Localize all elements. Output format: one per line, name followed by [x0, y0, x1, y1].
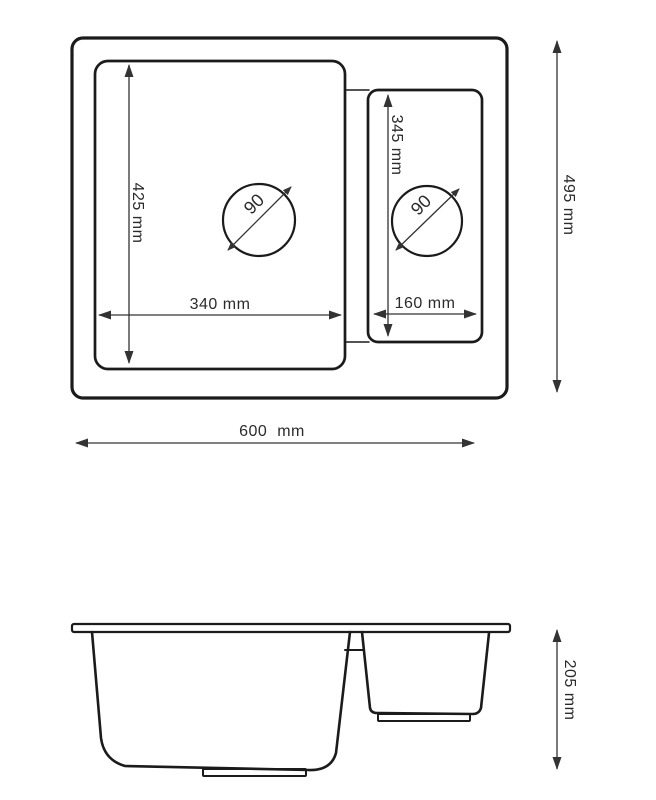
sink-diagram-canvas: 90 90 425 mm 340 mm 345 mm 160 mm 495 mm… — [0, 0, 656, 800]
dim-small-bowl-depth-label: 345 mm — [388, 115, 405, 176]
dim-overall-width-label: 600 mm — [239, 423, 305, 440]
dim-height-label: 205 mm — [561, 660, 578, 721]
small-bowl-profile — [362, 632, 489, 714]
rim-profile — [72, 624, 510, 632]
sink-side-view: 205 mm — [72, 624, 578, 776]
sink-dimension-diagram: 90 90 425 mm 340 mm 345 mm 160 mm 495 mm… — [0, 0, 656, 800]
dim-overall-depth-label: 495 mm — [560, 175, 577, 236]
dim-main-bowl-width-label: 340 mm — [190, 296, 251, 313]
dim-main-bowl-depth-label: 425 mm — [129, 183, 146, 244]
main-drain-circle — [223, 184, 295, 256]
main-bowl-profile — [92, 632, 350, 770]
sink-top-view: 90 90 425 mm 340 mm 345 mm 160 mm 495 mm… — [72, 38, 577, 443]
small-drain-diameter-label: 90 — [407, 191, 435, 219]
dim-small-bowl-width-label: 160 mm — [395, 295, 456, 312]
